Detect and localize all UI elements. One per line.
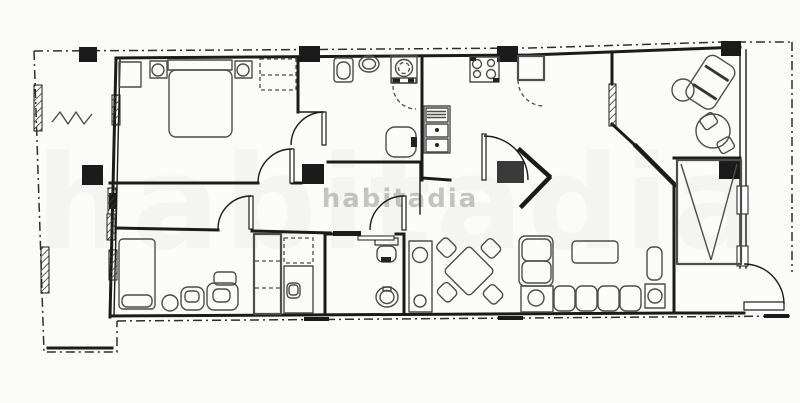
window-hatch [34, 85, 42, 131]
bath2-bidet-inner [380, 291, 394, 304]
floorplan-svg: habitadia habitadia [0, 0, 800, 403]
column [721, 41, 741, 56]
bedroom2-pillow [122, 295, 152, 307]
door-leaf [402, 196, 406, 230]
sliding-door-bar [333, 231, 361, 236]
sliding-door-bar [358, 236, 394, 240]
window-hatch [109, 250, 117, 280]
column [299, 46, 320, 62]
column [497, 46, 518, 62]
window-hatch [107, 214, 115, 240]
door-leaf [290, 149, 294, 183]
sofa-corner-table-top [528, 290, 544, 306]
bedroom1-lamp [237, 64, 249, 76]
bath2-toilet-seat [381, 257, 391, 262]
sofa-cushion [576, 286, 597, 311]
room4-lounger-stripe [693, 84, 716, 99]
entrance-door-leaf [744, 302, 784, 310]
window-hatch [41, 247, 49, 293]
balcony-zigzag [52, 112, 92, 124]
bedroom1-headboard [168, 60, 232, 70]
floorplan-image: habitadia habitadia [0, 0, 800, 403]
wall-corridor-bottom [252, 231, 330, 233]
window-hatch [112, 95, 120, 125]
bedroom1-corner-table [119, 62, 141, 87]
column [82, 165, 103, 185]
threshold-mark [498, 316, 523, 320]
kitchen-sink-drain [435, 128, 439, 132]
bedroom2-armchair-cushion [213, 289, 230, 302]
column [79, 47, 97, 62]
window-hatch [609, 84, 616, 126]
wall-bedroom2-top [116, 228, 218, 230]
bedroom1-lamp [152, 64, 164, 76]
bath1-basin-inner [363, 59, 376, 69]
watermark-small: habitadia [322, 184, 479, 214]
pillar-dark [497, 161, 524, 183]
living-sideboard-bowl [414, 295, 426, 307]
sofa-cushion [620, 286, 641, 311]
bath2-bidet-tap [383, 287, 391, 291]
bath1-tub-knob [411, 137, 417, 147]
room4-lounger-stripe [705, 66, 728, 81]
wall-kitchen-bottom [422, 178, 450, 180]
room4-stool [672, 79, 694, 101]
threshold-mark [764, 314, 789, 318]
stove-burner [474, 71, 481, 78]
washing-machine-knob [408, 79, 414, 83]
window-hatch [108, 188, 116, 214]
column [302, 164, 324, 184]
threshold-mark [304, 317, 329, 321]
side-table-top [648, 289, 662, 303]
washing-machine-drum-inner [399, 63, 410, 74]
wall-bottom-main [110, 313, 676, 316]
fridge [518, 56, 544, 80]
sofa-cushion [554, 286, 575, 311]
stove-burner [487, 70, 496, 79]
dining-chair [482, 283, 505, 306]
bedroom2-chair-cushion [185, 291, 199, 302]
stove-mark [470, 57, 476, 61]
door-leaf [249, 196, 253, 229]
washing-machine-swing [393, 86, 416, 109]
sofa-cushion [598, 286, 619, 311]
dining-chair [436, 281, 459, 304]
utility-fixture-inner [289, 285, 298, 295]
stove-mark [493, 78, 499, 82]
window-sill [737, 186, 748, 214]
stove-burner [488, 60, 495, 67]
bedroom2-round-table [162, 295, 178, 311]
door-leaf [482, 134, 486, 180]
kitchen-sink-drain [435, 143, 439, 147]
fridge-door-swing [518, 80, 544, 106]
bath1-sink-basin [337, 62, 350, 79]
bedroom2-armchair [207, 283, 238, 310]
door-leaf [322, 112, 326, 145]
washing-machine-knob [393, 79, 400, 83]
